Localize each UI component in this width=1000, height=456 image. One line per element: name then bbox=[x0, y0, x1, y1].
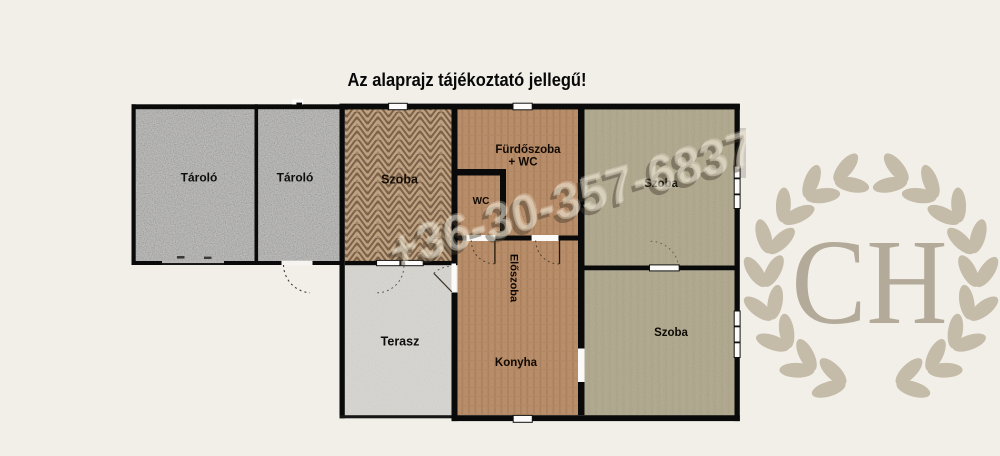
svg-text:Szoba: Szoba bbox=[381, 173, 419, 187]
svg-text:+ WC: + WC bbox=[508, 157, 537, 169]
svg-text:CH: CH bbox=[792, 215, 948, 350]
svg-text:Fürdőszoba: Fürdőszoba bbox=[495, 144, 561, 156]
svg-text:Szoba: Szoba bbox=[654, 327, 688, 339]
svg-text:Terasz: Terasz bbox=[381, 335, 420, 349]
svg-text:Előszoba: Előszoba bbox=[508, 254, 520, 303]
svg-text:Az alaprajz tájékoztató jelleg: Az alaprajz tájékoztató jellegű! bbox=[348, 69, 587, 90]
svg-text:Tároló: Tároló bbox=[181, 171, 218, 185]
svg-text:Konyha: Konyha bbox=[495, 357, 538, 369]
svg-text:Tároló: Tároló bbox=[277, 171, 314, 185]
